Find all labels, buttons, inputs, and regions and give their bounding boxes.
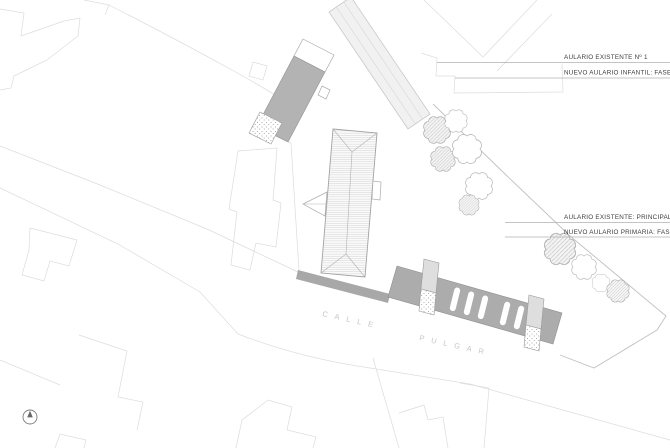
label-aulario-existente-1: AULARIO EXISTENTE Nº 1 [564, 54, 648, 61]
site-plan-drawing: AULARIO EXISTENTE Nº 1 NUEVO AULARIO INF… [0, 0, 670, 448]
building-new-slab [388, 259, 562, 351]
label-nuevo-aulario-infantil: NUEVO AULARIO INFANTIL: FASE 1 [564, 70, 670, 77]
label-aulario-existente-principal: AULARIO EXISTENTE: PRINCIPAL [564, 214, 670, 221]
trees-row-east [544, 233, 629, 302]
building-top-gray [249, 39, 334, 144]
building-top-band [329, 0, 430, 129]
north-arrow-icon [23, 410, 37, 424]
label-group-1: AULARIO EXISTENTE Nº 1 NUEVO AULARIO INF… [437, 54, 670, 78]
label-group-2: AULARIO EXISTENTE: PRINCIPAL NUEVO AULAR… [505, 214, 670, 237]
street-name-calle: CALLE [322, 309, 381, 331]
street-name-pulgar: PULGAR [419, 333, 492, 358]
side-bump [372, 181, 381, 200]
building-main-roof [303, 129, 381, 277]
site-plan-sheet: AULARIO EXISTENTE Nº 1 NUEVO AULARIO INF… [0, 0, 670, 448]
trees-cluster-center [424, 110, 493, 215]
parcel-outlines [0, 0, 563, 448]
label-nuevo-aulario-primaria: NUEVO AULARIO PRIMARIA: FASE 2 [564, 229, 670, 236]
